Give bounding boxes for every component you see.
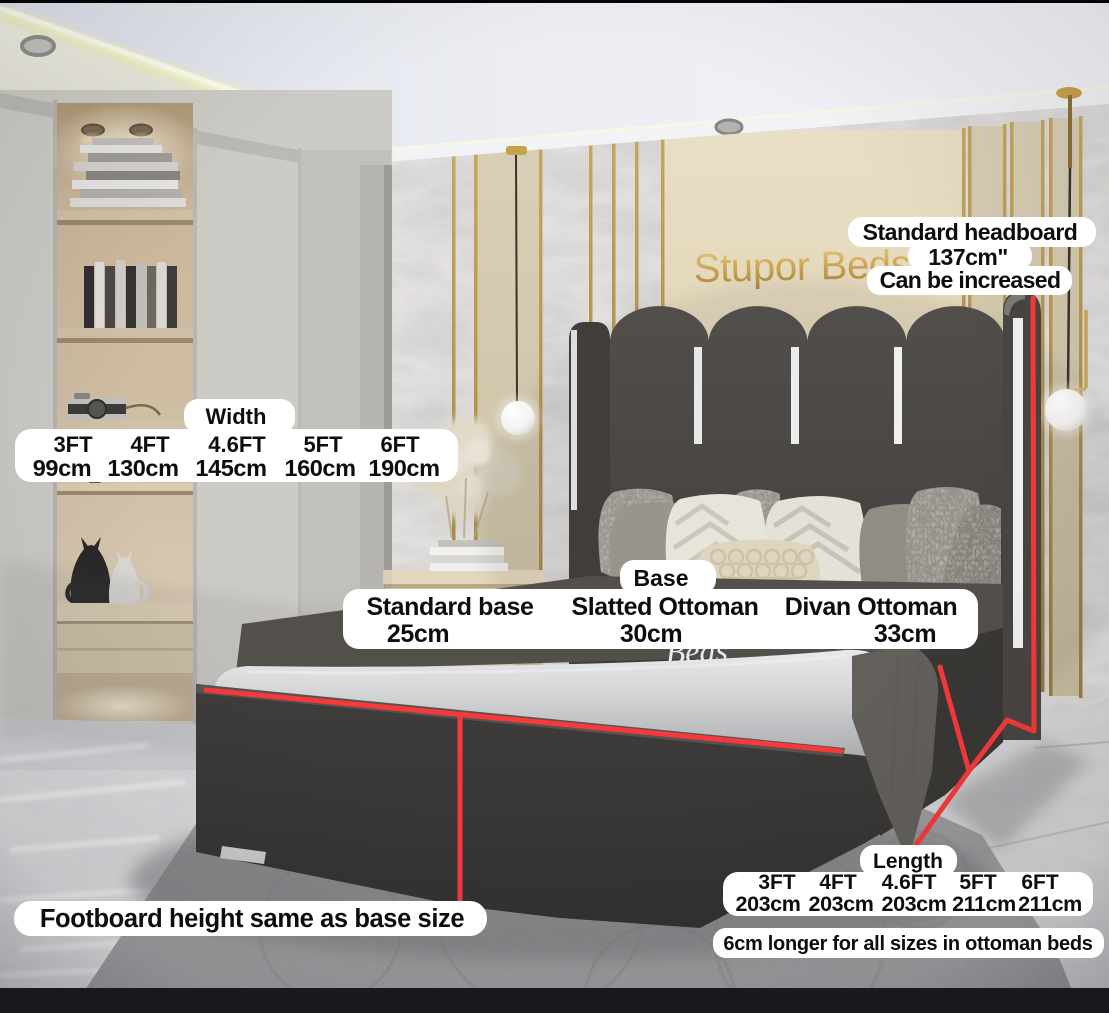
svg-text:4.6FT: 4.6FT [208, 432, 266, 457]
svg-text:203cm: 203cm [809, 892, 874, 916]
svg-text:99cm: 99cm [33, 455, 92, 481]
svg-text:4.6FT: 4.6FT [882, 871, 937, 894]
svg-text:190cm: 190cm [368, 455, 439, 481]
svg-text:3FT: 3FT [758, 871, 796, 894]
svg-text:6cm longer for all sizes in ot: 6cm longer for all sizes in ottoman beds [723, 933, 1092, 955]
svg-text:Standard headboard: Standard headboard [863, 219, 1078, 245]
svg-text:211cm: 211cm [1018, 892, 1082, 916]
svg-text:6FT: 6FT [380, 432, 420, 457]
svg-text:5FT: 5FT [303, 432, 343, 457]
svg-text:4FT: 4FT [130, 432, 170, 457]
svg-text:3FT: 3FT [53, 432, 93, 457]
svg-text:30cm: 30cm [620, 620, 682, 648]
svg-text:5FT: 5FT [959, 871, 997, 894]
svg-text:4FT: 4FT [819, 871, 857, 894]
svg-text:160cm: 160cm [284, 455, 355, 481]
svg-text:Slatted Ottoman: Slatted Ottoman [571, 593, 758, 621]
svg-text:6FT: 6FT [1021, 871, 1059, 894]
svg-text:130cm: 130cm [107, 455, 178, 481]
svg-text:Standard base: Standard base [366, 593, 534, 621]
svg-text:33cm: 33cm [874, 620, 936, 648]
svg-text:203cm: 203cm [736, 892, 801, 916]
svg-text:203cm: 203cm [882, 892, 947, 916]
svg-text:Length: Length [873, 850, 943, 873]
svg-text:145cm: 145cm [195, 455, 266, 481]
svg-text:211cm: 211cm [952, 892, 1016, 916]
svg-text:Divan Ottoman: Divan Ottoman [785, 593, 958, 621]
svg-text:Width: Width [206, 404, 267, 429]
svg-text:25cm: 25cm [387, 620, 449, 648]
svg-text:Can be increased: Can be increased [880, 267, 1061, 293]
svg-text:Base: Base [634, 565, 689, 591]
svg-text:Footboard height same as base: Footboard height same as base size [40, 905, 464, 933]
